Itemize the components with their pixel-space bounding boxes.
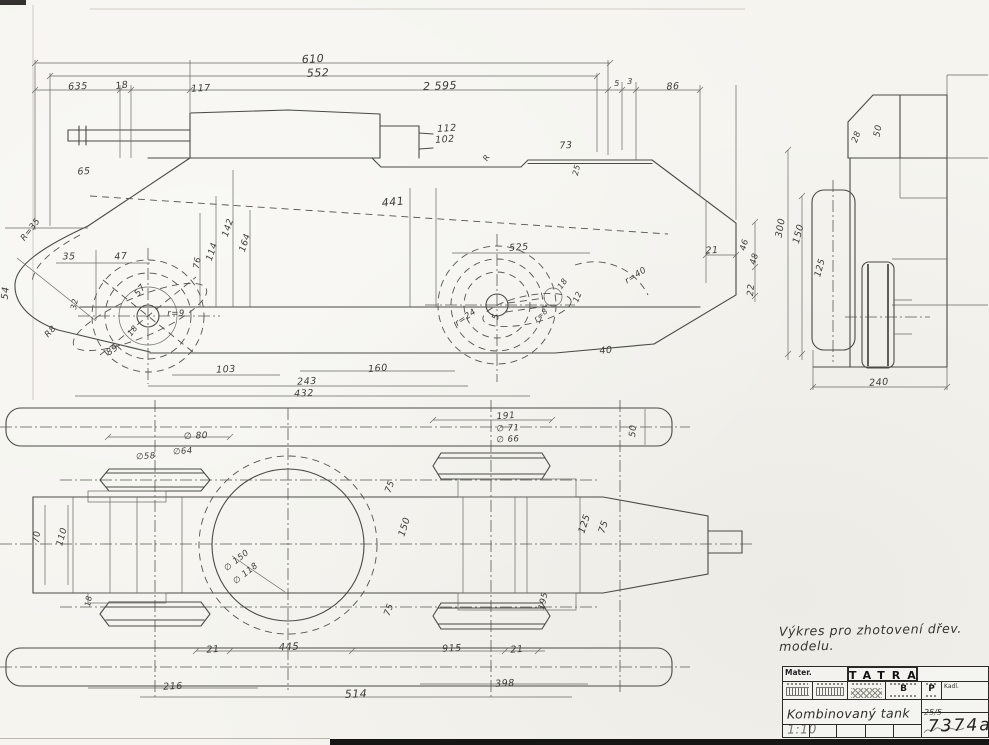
drawing-title-cell: Kombinovaný tank 1:10 <box>782 699 922 725</box>
title-block-hatch-cell <box>812 681 848 700</box>
illegible-text <box>817 683 843 685</box>
title-block-small-cell <box>865 724 894 738</box>
scan-corner-mark <box>0 0 26 5</box>
title-block-small-cell <box>782 724 810 738</box>
title-block-crosshatch-cell <box>847 681 886 700</box>
front-view <box>785 75 988 390</box>
scan-edge-bottom <box>330 739 989 745</box>
illegible-text <box>926 695 937 697</box>
kadl-cell: Kadl. <box>941 681 989 700</box>
manufacturer-logo: TATRA <box>847 666 918 682</box>
approval-cell-b: B <box>885 681 922 700</box>
title-block-small-cell <box>836 724 866 738</box>
hatch-pattern <box>786 687 809 696</box>
hatch-pattern <box>816 687 844 696</box>
title-block: Mater. TATRA B P Kadl. Kombinovaný tank … <box>782 666 989 737</box>
illegible-text <box>890 695 917 697</box>
side-view <box>5 60 758 396</box>
drawing-number-cell: 7374a <box>921 712 989 738</box>
illegible-text <box>787 683 808 685</box>
date-signature-cell: 25/5 <box>921 699 989 713</box>
plan-view <box>0 400 755 700</box>
blueprint-sheet: 635181176105522 59553861121027325R65R=35… <box>0 0 989 745</box>
approval-letter-p: P <box>922 685 941 694</box>
title-block-small-cell <box>809 724 837 738</box>
scan-edge-line <box>0 738 330 739</box>
crosshatch-pattern <box>851 688 882 698</box>
drawing-number: 7374a <box>922 712 989 737</box>
sheet-frame <box>33 5 745 400</box>
material-cell: Mater. <box>782 666 848 682</box>
handwritten-note: Výkres pro zhotovení dřev. modelu. <box>779 620 989 654</box>
title-block-small-cell <box>893 724 922 738</box>
illegible-text <box>852 683 881 685</box>
approval-letter-b: B <box>886 685 921 694</box>
title-block-hatch-cell <box>782 681 813 700</box>
title-block-empty-cell <box>917 666 989 682</box>
approval-cell-p: P <box>921 681 942 700</box>
